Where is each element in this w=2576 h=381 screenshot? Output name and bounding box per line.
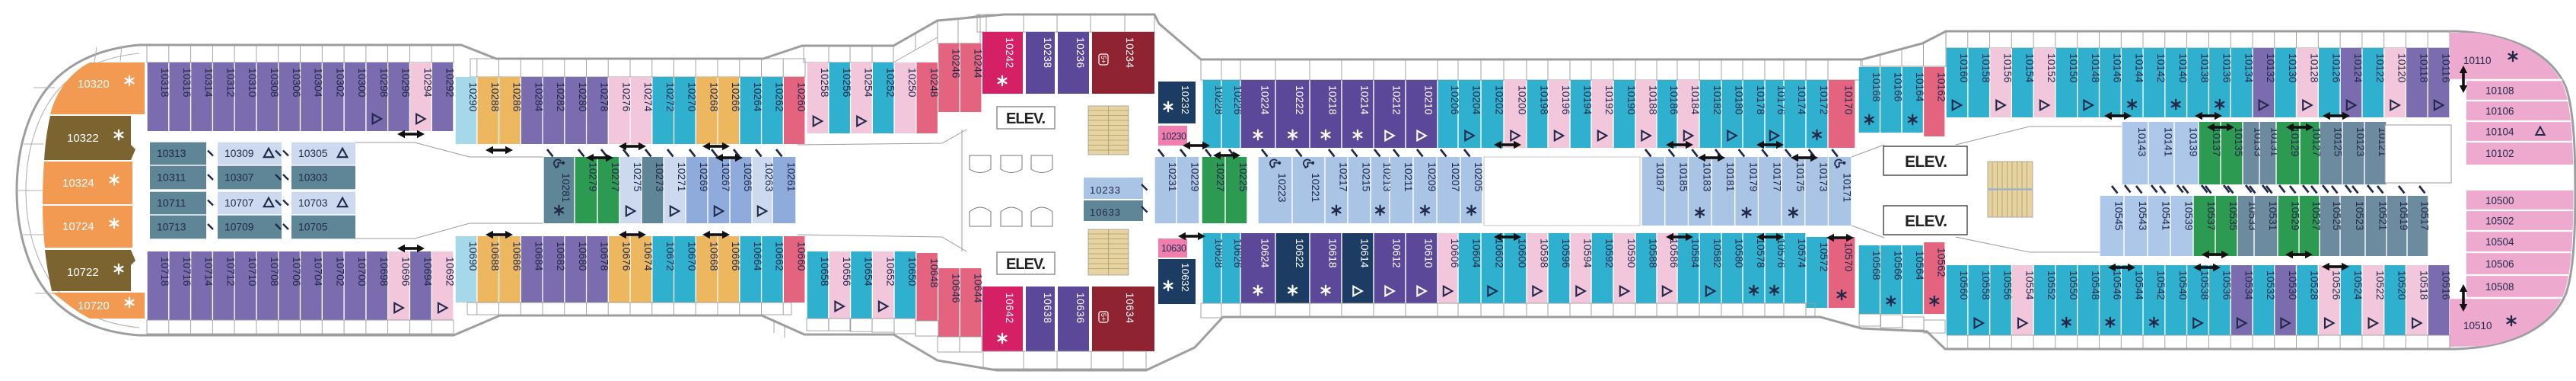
svg-text:10280: 10280 xyxy=(577,82,588,112)
svg-text:10286: 10286 xyxy=(511,82,523,112)
svg-text:10656: 10656 xyxy=(841,257,852,287)
svg-text:10134: 10134 xyxy=(2243,53,2254,83)
svg-text:10544: 10544 xyxy=(2133,271,2145,300)
svg-text:10177: 10177 xyxy=(1771,162,1782,192)
svg-text:10526: 10526 xyxy=(2330,271,2342,300)
svg-text:10184: 10184 xyxy=(1689,85,1701,115)
svg-text:10564: 10564 xyxy=(1914,251,1925,280)
svg-text:10546: 10546 xyxy=(2112,271,2123,300)
svg-text:10541: 10541 xyxy=(2160,201,2172,231)
svg-text:10188: 10188 xyxy=(1648,85,1659,115)
svg-text:10217: 10217 xyxy=(1338,162,1349,192)
svg-text:10156: 10156 xyxy=(2002,53,2014,83)
svg-text:10209: 10209 xyxy=(1426,162,1438,192)
svg-text:10678: 10678 xyxy=(599,242,610,271)
svg-text:10584: 10584 xyxy=(1689,239,1701,268)
svg-text:10598: 10598 xyxy=(1539,239,1550,268)
svg-text:10722: 10722 xyxy=(67,266,99,279)
svg-text:10185: 10185 xyxy=(1678,162,1689,192)
svg-text:10644: 10644 xyxy=(972,274,983,303)
svg-text:10648: 10648 xyxy=(928,258,940,288)
svg-text:10543: 10543 xyxy=(2137,201,2148,231)
svg-text:10532: 10532 xyxy=(2265,271,2276,300)
svg-text:10181: 10181 xyxy=(1724,162,1736,192)
svg-text:10168: 10168 xyxy=(1871,72,1882,102)
svg-text:10152: 10152 xyxy=(2046,53,2057,83)
svg-text:10668: 10668 xyxy=(708,242,719,271)
svg-text:10594: 10594 xyxy=(1582,239,1594,268)
svg-text:10702: 10702 xyxy=(334,257,345,287)
svg-text:10570: 10570 xyxy=(1843,242,1855,272)
svg-text:10545: 10545 xyxy=(2113,201,2125,231)
svg-text:10192: 10192 xyxy=(1603,85,1615,115)
svg-text:10309: 10309 xyxy=(224,148,254,159)
svg-text:10632: 10632 xyxy=(1180,263,1191,292)
svg-text:10508: 10508 xyxy=(2485,281,2514,293)
svg-text:10652: 10652 xyxy=(884,257,896,287)
svg-text:10205: 10205 xyxy=(1473,162,1484,192)
svg-text:ELEV.: ELEV. xyxy=(1006,110,1046,127)
svg-text:10614: 10614 xyxy=(1359,239,1371,268)
svg-text:10692: 10692 xyxy=(444,257,455,287)
svg-text:10194: 10194 xyxy=(1582,85,1594,115)
svg-text:10144: 10144 xyxy=(2133,53,2145,83)
svg-text:10187: 10187 xyxy=(1654,162,1666,192)
svg-text:10650: 10650 xyxy=(906,257,918,287)
svg-text:10135: 10135 xyxy=(2233,127,2244,157)
svg-text:10211: 10211 xyxy=(1403,162,1414,192)
svg-text:10682: 10682 xyxy=(555,242,566,271)
svg-text:10281: 10281 xyxy=(560,173,572,203)
svg-text:10708: 10708 xyxy=(269,257,280,287)
svg-text:10296: 10296 xyxy=(400,68,412,98)
svg-text:ELEV.: ELEV. xyxy=(1905,153,1947,171)
svg-text:10706: 10706 xyxy=(291,257,302,287)
svg-text:10284: 10284 xyxy=(533,82,544,112)
svg-text:10320: 10320 xyxy=(78,78,110,91)
svg-text:10288: 10288 xyxy=(489,82,501,112)
svg-text:10120: 10120 xyxy=(2396,53,2408,83)
svg-text:10684: 10684 xyxy=(533,242,544,271)
svg-text:10274: 10274 xyxy=(642,82,654,112)
svg-text:10696: 10696 xyxy=(400,257,412,287)
svg-text:10260: 10260 xyxy=(795,82,807,112)
svg-text:10624: 10624 xyxy=(1259,239,1271,268)
svg-text:10622: 10622 xyxy=(1294,239,1305,268)
svg-text:10262: 10262 xyxy=(774,82,785,112)
svg-text:10618: 10618 xyxy=(1327,239,1339,268)
svg-text:10704: 10704 xyxy=(313,257,324,287)
svg-text:10318: 10318 xyxy=(159,68,170,98)
svg-text:10212: 10212 xyxy=(1391,85,1403,115)
svg-text:10304: 10304 xyxy=(313,68,324,98)
svg-text:10269: 10269 xyxy=(698,162,709,192)
svg-text:10234: 10234 xyxy=(1124,37,1135,68)
svg-text:10110: 10110 xyxy=(2463,55,2492,66)
svg-text:10680: 10680 xyxy=(577,242,588,271)
svg-text:10602: 10602 xyxy=(1494,239,1505,268)
svg-text:10138: 10138 xyxy=(2199,53,2211,83)
svg-text:10202: 10202 xyxy=(1494,85,1505,115)
svg-text:10703: 10703 xyxy=(298,197,328,209)
svg-text:10223: 10223 xyxy=(1276,173,1288,203)
svg-text:10540: 10540 xyxy=(2177,271,2189,300)
svg-text:5+: 5+ xyxy=(1100,313,1107,321)
svg-text:10276: 10276 xyxy=(620,82,632,112)
svg-text:10636: 10636 xyxy=(1075,293,1086,323)
svg-text:10662: 10662 xyxy=(774,242,785,271)
svg-text:10272: 10272 xyxy=(664,82,676,112)
svg-text:10129: 10129 xyxy=(2289,127,2301,157)
svg-text:10139: 10139 xyxy=(2188,127,2199,157)
svg-text:10600: 10600 xyxy=(1517,239,1528,268)
svg-text:10183: 10183 xyxy=(1701,162,1712,192)
svg-text:10207: 10207 xyxy=(1450,162,1461,192)
svg-text:10535: 10535 xyxy=(2227,201,2239,231)
svg-text:10510: 10510 xyxy=(2463,320,2492,331)
svg-text:10108: 10108 xyxy=(2485,85,2514,97)
svg-text:10137: 10137 xyxy=(2211,127,2222,157)
svg-text:10698: 10698 xyxy=(378,257,390,287)
svg-text:10539: 10539 xyxy=(2183,201,2195,231)
svg-text:10686: 10686 xyxy=(511,242,523,271)
svg-text:10670: 10670 xyxy=(686,242,698,271)
svg-text:10718: 10718 xyxy=(159,257,170,287)
svg-text:10122: 10122 xyxy=(2374,53,2386,83)
svg-text:10160: 10160 xyxy=(1958,53,1969,83)
svg-text:10275: 10275 xyxy=(632,162,643,192)
svg-text:10265: 10265 xyxy=(742,162,753,192)
svg-text:10246: 10246 xyxy=(950,49,962,78)
svg-text:10182: 10182 xyxy=(1711,85,1723,115)
svg-text:10248: 10248 xyxy=(928,68,940,98)
svg-text:10694: 10694 xyxy=(422,257,434,287)
svg-text:10528: 10528 xyxy=(2309,271,2320,300)
svg-text:10172: 10172 xyxy=(1818,85,1829,115)
svg-text:10500: 10500 xyxy=(2485,195,2514,207)
svg-text:10554: 10554 xyxy=(2024,271,2035,300)
svg-text:10227: 10227 xyxy=(1215,162,1226,192)
svg-text:10518: 10518 xyxy=(2418,271,2430,300)
svg-text:10634: 10634 xyxy=(1124,293,1135,323)
svg-text:10516: 10516 xyxy=(2440,271,2451,300)
svg-text:10244: 10244 xyxy=(972,49,983,78)
svg-text:10676: 10676 xyxy=(620,242,632,271)
svg-text:10106: 10106 xyxy=(2485,106,2514,117)
svg-text:10534: 10534 xyxy=(2243,271,2254,300)
svg-text:10271: 10271 xyxy=(676,162,687,192)
svg-text:10542: 10542 xyxy=(2155,271,2167,300)
svg-text:10711: 10711 xyxy=(157,197,186,209)
svg-text:10132: 10132 xyxy=(2265,53,2276,83)
svg-text:10162: 10162 xyxy=(1935,72,1947,102)
svg-text:10123: 10123 xyxy=(2355,127,2366,157)
svg-text:10713: 10713 xyxy=(157,222,186,233)
svg-text:10270: 10270 xyxy=(686,82,698,112)
svg-text:10642: 10642 xyxy=(1004,293,1015,323)
svg-text:10714: 10714 xyxy=(203,257,215,287)
svg-text:10506: 10506 xyxy=(2485,258,2514,270)
svg-text:10242: 10242 xyxy=(1004,37,1015,68)
svg-text:10523: 10523 xyxy=(2354,201,2365,231)
svg-text:10688: 10688 xyxy=(489,242,501,271)
svg-text:10316: 10316 xyxy=(181,68,193,98)
svg-text:10140: 10140 xyxy=(2177,53,2189,83)
svg-text:10150: 10150 xyxy=(2068,53,2079,83)
svg-text:10322: 10322 xyxy=(67,132,99,145)
svg-text:10724: 10724 xyxy=(62,220,94,233)
svg-text:10196: 10196 xyxy=(1560,85,1571,115)
svg-text:10550: 10550 xyxy=(2068,271,2079,300)
svg-text:10305: 10305 xyxy=(298,148,328,159)
svg-text:10175: 10175 xyxy=(1794,162,1806,192)
svg-text:10705: 10705 xyxy=(298,222,328,233)
svg-text:10531: 10531 xyxy=(2267,201,2278,231)
svg-text:10660: 10660 xyxy=(795,242,807,271)
svg-text:ELEV.: ELEV. xyxy=(1905,213,1947,230)
svg-text:10179: 10179 xyxy=(1748,162,1759,192)
svg-text:10158: 10158 xyxy=(1980,53,1992,83)
svg-text:10658: 10658 xyxy=(819,257,830,287)
svg-text:10128: 10128 xyxy=(2309,53,2320,83)
svg-text:10720: 10720 xyxy=(78,299,110,312)
svg-text:10174: 10174 xyxy=(1796,85,1807,115)
svg-text:10231: 10231 xyxy=(1167,162,1178,192)
svg-text:10233: 10233 xyxy=(1090,184,1120,196)
svg-text:10610: 10610 xyxy=(1423,239,1434,268)
svg-text:10210: 10210 xyxy=(1423,85,1434,115)
svg-text:10604: 10604 xyxy=(1471,239,1482,268)
svg-text:10252: 10252 xyxy=(884,68,896,98)
svg-text:10282: 10282 xyxy=(555,82,566,112)
svg-text:10562: 10562 xyxy=(1935,248,1947,277)
svg-text:10222: 10222 xyxy=(1294,85,1305,115)
svg-text:10690: 10690 xyxy=(467,242,479,271)
svg-text:10225: 10225 xyxy=(1237,162,1249,192)
svg-text:10102: 10102 xyxy=(2485,148,2514,159)
svg-text:10278: 10278 xyxy=(599,82,610,112)
svg-text:10215: 10215 xyxy=(1361,162,1372,192)
svg-text:10178: 10178 xyxy=(1755,85,1766,115)
svg-text:10130: 10130 xyxy=(2287,53,2298,83)
svg-text:10504: 10504 xyxy=(2485,236,2514,248)
svg-text:10190: 10190 xyxy=(1626,85,1637,115)
svg-text:10664: 10664 xyxy=(752,242,763,271)
svg-text:10104: 10104 xyxy=(2485,126,2514,138)
svg-text:10596: 10596 xyxy=(1560,239,1571,268)
svg-text:10548: 10548 xyxy=(2090,271,2101,300)
svg-text:10590: 10590 xyxy=(1626,239,1637,268)
svg-text:10238: 10238 xyxy=(1042,37,1053,68)
svg-text:10303: 10303 xyxy=(298,172,328,184)
svg-text:10592: 10592 xyxy=(1603,239,1615,268)
svg-text:10314: 10314 xyxy=(203,68,215,98)
svg-text:10538: 10538 xyxy=(2199,271,2211,300)
svg-text:10173: 10173 xyxy=(1818,162,1829,192)
svg-text:10164: 10164 xyxy=(1914,72,1925,102)
svg-text:10142: 10142 xyxy=(2155,53,2167,83)
svg-text:10530: 10530 xyxy=(2287,271,2298,300)
svg-text:10279: 10279 xyxy=(587,162,599,192)
svg-text:10712: 10712 xyxy=(224,257,236,287)
svg-text:10166: 10166 xyxy=(1892,72,1903,102)
svg-text:10221: 10221 xyxy=(1310,173,1321,203)
svg-text:10558: 10558 xyxy=(1980,271,1992,300)
svg-text:10716: 10716 xyxy=(181,257,193,287)
svg-text:10552: 10552 xyxy=(2046,271,2057,300)
svg-text:10204: 10204 xyxy=(1471,85,1482,115)
svg-text:10266: 10266 xyxy=(730,82,741,112)
svg-text:10313: 10313 xyxy=(157,148,186,159)
svg-text:10124: 10124 xyxy=(2352,53,2364,83)
svg-text:10566: 10566 xyxy=(1892,251,1903,280)
svg-text:10250: 10250 xyxy=(906,68,918,98)
svg-text:10258: 10258 xyxy=(819,68,830,98)
svg-text:10582: 10582 xyxy=(1711,239,1723,268)
svg-text:10580: 10580 xyxy=(1734,239,1745,268)
svg-text:10556: 10556 xyxy=(2002,271,2014,300)
svg-text:10136: 10136 xyxy=(2221,53,2233,83)
svg-text:10560: 10560 xyxy=(1958,271,1969,300)
svg-text:10267: 10267 xyxy=(720,162,731,192)
svg-text:10310: 10310 xyxy=(247,68,258,98)
svg-text:10268: 10268 xyxy=(708,82,719,112)
svg-text:10524: 10524 xyxy=(2352,271,2364,300)
svg-text:10574: 10574 xyxy=(1796,239,1807,268)
svg-text:10171: 10171 xyxy=(1841,173,1852,203)
svg-text:10277: 10277 xyxy=(610,162,621,192)
svg-text:10229: 10229 xyxy=(1189,162,1201,192)
svg-text:10537: 10537 xyxy=(2205,201,2217,231)
svg-text:10214: 10214 xyxy=(1359,85,1371,115)
svg-text:10298: 10298 xyxy=(378,68,390,98)
svg-text:10256: 10256 xyxy=(841,68,852,98)
svg-text:10520: 10520 xyxy=(2396,271,2408,300)
svg-text:10294: 10294 xyxy=(422,68,434,98)
svg-text:10143: 10143 xyxy=(2136,127,2148,157)
svg-text:10666: 10666 xyxy=(730,242,741,271)
svg-text:10273: 10273 xyxy=(654,162,665,192)
svg-text:10218: 10218 xyxy=(1327,85,1339,115)
svg-text:10709: 10709 xyxy=(224,222,254,233)
svg-text:10700: 10700 xyxy=(356,257,368,287)
svg-text:10254: 10254 xyxy=(863,68,874,98)
svg-text:10710: 10710 xyxy=(247,257,258,287)
svg-text:10236: 10236 xyxy=(1075,37,1086,68)
svg-text:10521: 10521 xyxy=(2377,201,2389,231)
svg-text:10264: 10264 xyxy=(752,82,763,112)
svg-text:10630: 10630 xyxy=(1161,243,1186,254)
svg-text:ELEV.: ELEV. xyxy=(1006,256,1046,273)
svg-text:10646: 10646 xyxy=(950,274,962,303)
svg-text:10306: 10306 xyxy=(291,68,302,98)
svg-text:10707: 10707 xyxy=(224,197,254,209)
svg-text:10126: 10126 xyxy=(2330,53,2342,83)
svg-text:10308: 10308 xyxy=(269,68,280,98)
svg-text:10261: 10261 xyxy=(785,162,797,192)
svg-text:10572: 10572 xyxy=(1818,242,1829,272)
svg-text:10638: 10638 xyxy=(1042,293,1053,323)
svg-text:10290: 10290 xyxy=(467,82,479,112)
svg-text:10674: 10674 xyxy=(642,242,654,271)
svg-text:10522: 10522 xyxy=(2374,271,2386,300)
svg-text:10672: 10672 xyxy=(664,242,676,271)
svg-text:10536: 10536 xyxy=(2221,271,2233,300)
svg-text:10612: 10612 xyxy=(1391,239,1403,268)
svg-text:10200: 10200 xyxy=(1517,85,1528,115)
svg-text:10324: 10324 xyxy=(62,177,94,190)
svg-text:10578: 10578 xyxy=(1755,239,1766,268)
svg-text:10148: 10148 xyxy=(2090,53,2101,83)
svg-text:10302: 10302 xyxy=(334,68,345,98)
svg-text:10230: 10230 xyxy=(1161,131,1186,142)
svg-text:10180: 10180 xyxy=(1734,85,1745,115)
svg-text:10307: 10307 xyxy=(224,172,254,184)
svg-text:10154: 10154 xyxy=(2024,53,2035,83)
svg-text:10141: 10141 xyxy=(2163,127,2174,157)
svg-text:10588: 10588 xyxy=(1648,239,1659,268)
svg-text:10125: 10125 xyxy=(2332,127,2344,157)
svg-text:10633: 10633 xyxy=(1090,207,1120,218)
svg-text:10517: 10517 xyxy=(2419,201,2431,231)
svg-text:10654: 10654 xyxy=(863,257,874,287)
svg-text:10312: 10312 xyxy=(224,68,236,98)
svg-text:10300: 10300 xyxy=(356,68,368,98)
svg-text:10146: 10146 xyxy=(2112,53,2123,83)
svg-text:10292: 10292 xyxy=(444,68,455,98)
svg-text:10118: 10118 xyxy=(2418,53,2430,83)
svg-text:10529: 10529 xyxy=(2290,201,2301,231)
svg-text:10311: 10311 xyxy=(157,172,186,184)
svg-text:10170: 10170 xyxy=(1843,85,1855,115)
svg-text:10568: 10568 xyxy=(1871,251,1882,280)
svg-text:5+: 5+ xyxy=(1100,56,1107,63)
svg-text:10502: 10502 xyxy=(2485,216,2514,227)
svg-text:10198: 10198 xyxy=(1539,85,1550,115)
svg-text:10232: 10232 xyxy=(1180,85,1191,114)
svg-text:10224: 10224 xyxy=(1259,85,1271,115)
